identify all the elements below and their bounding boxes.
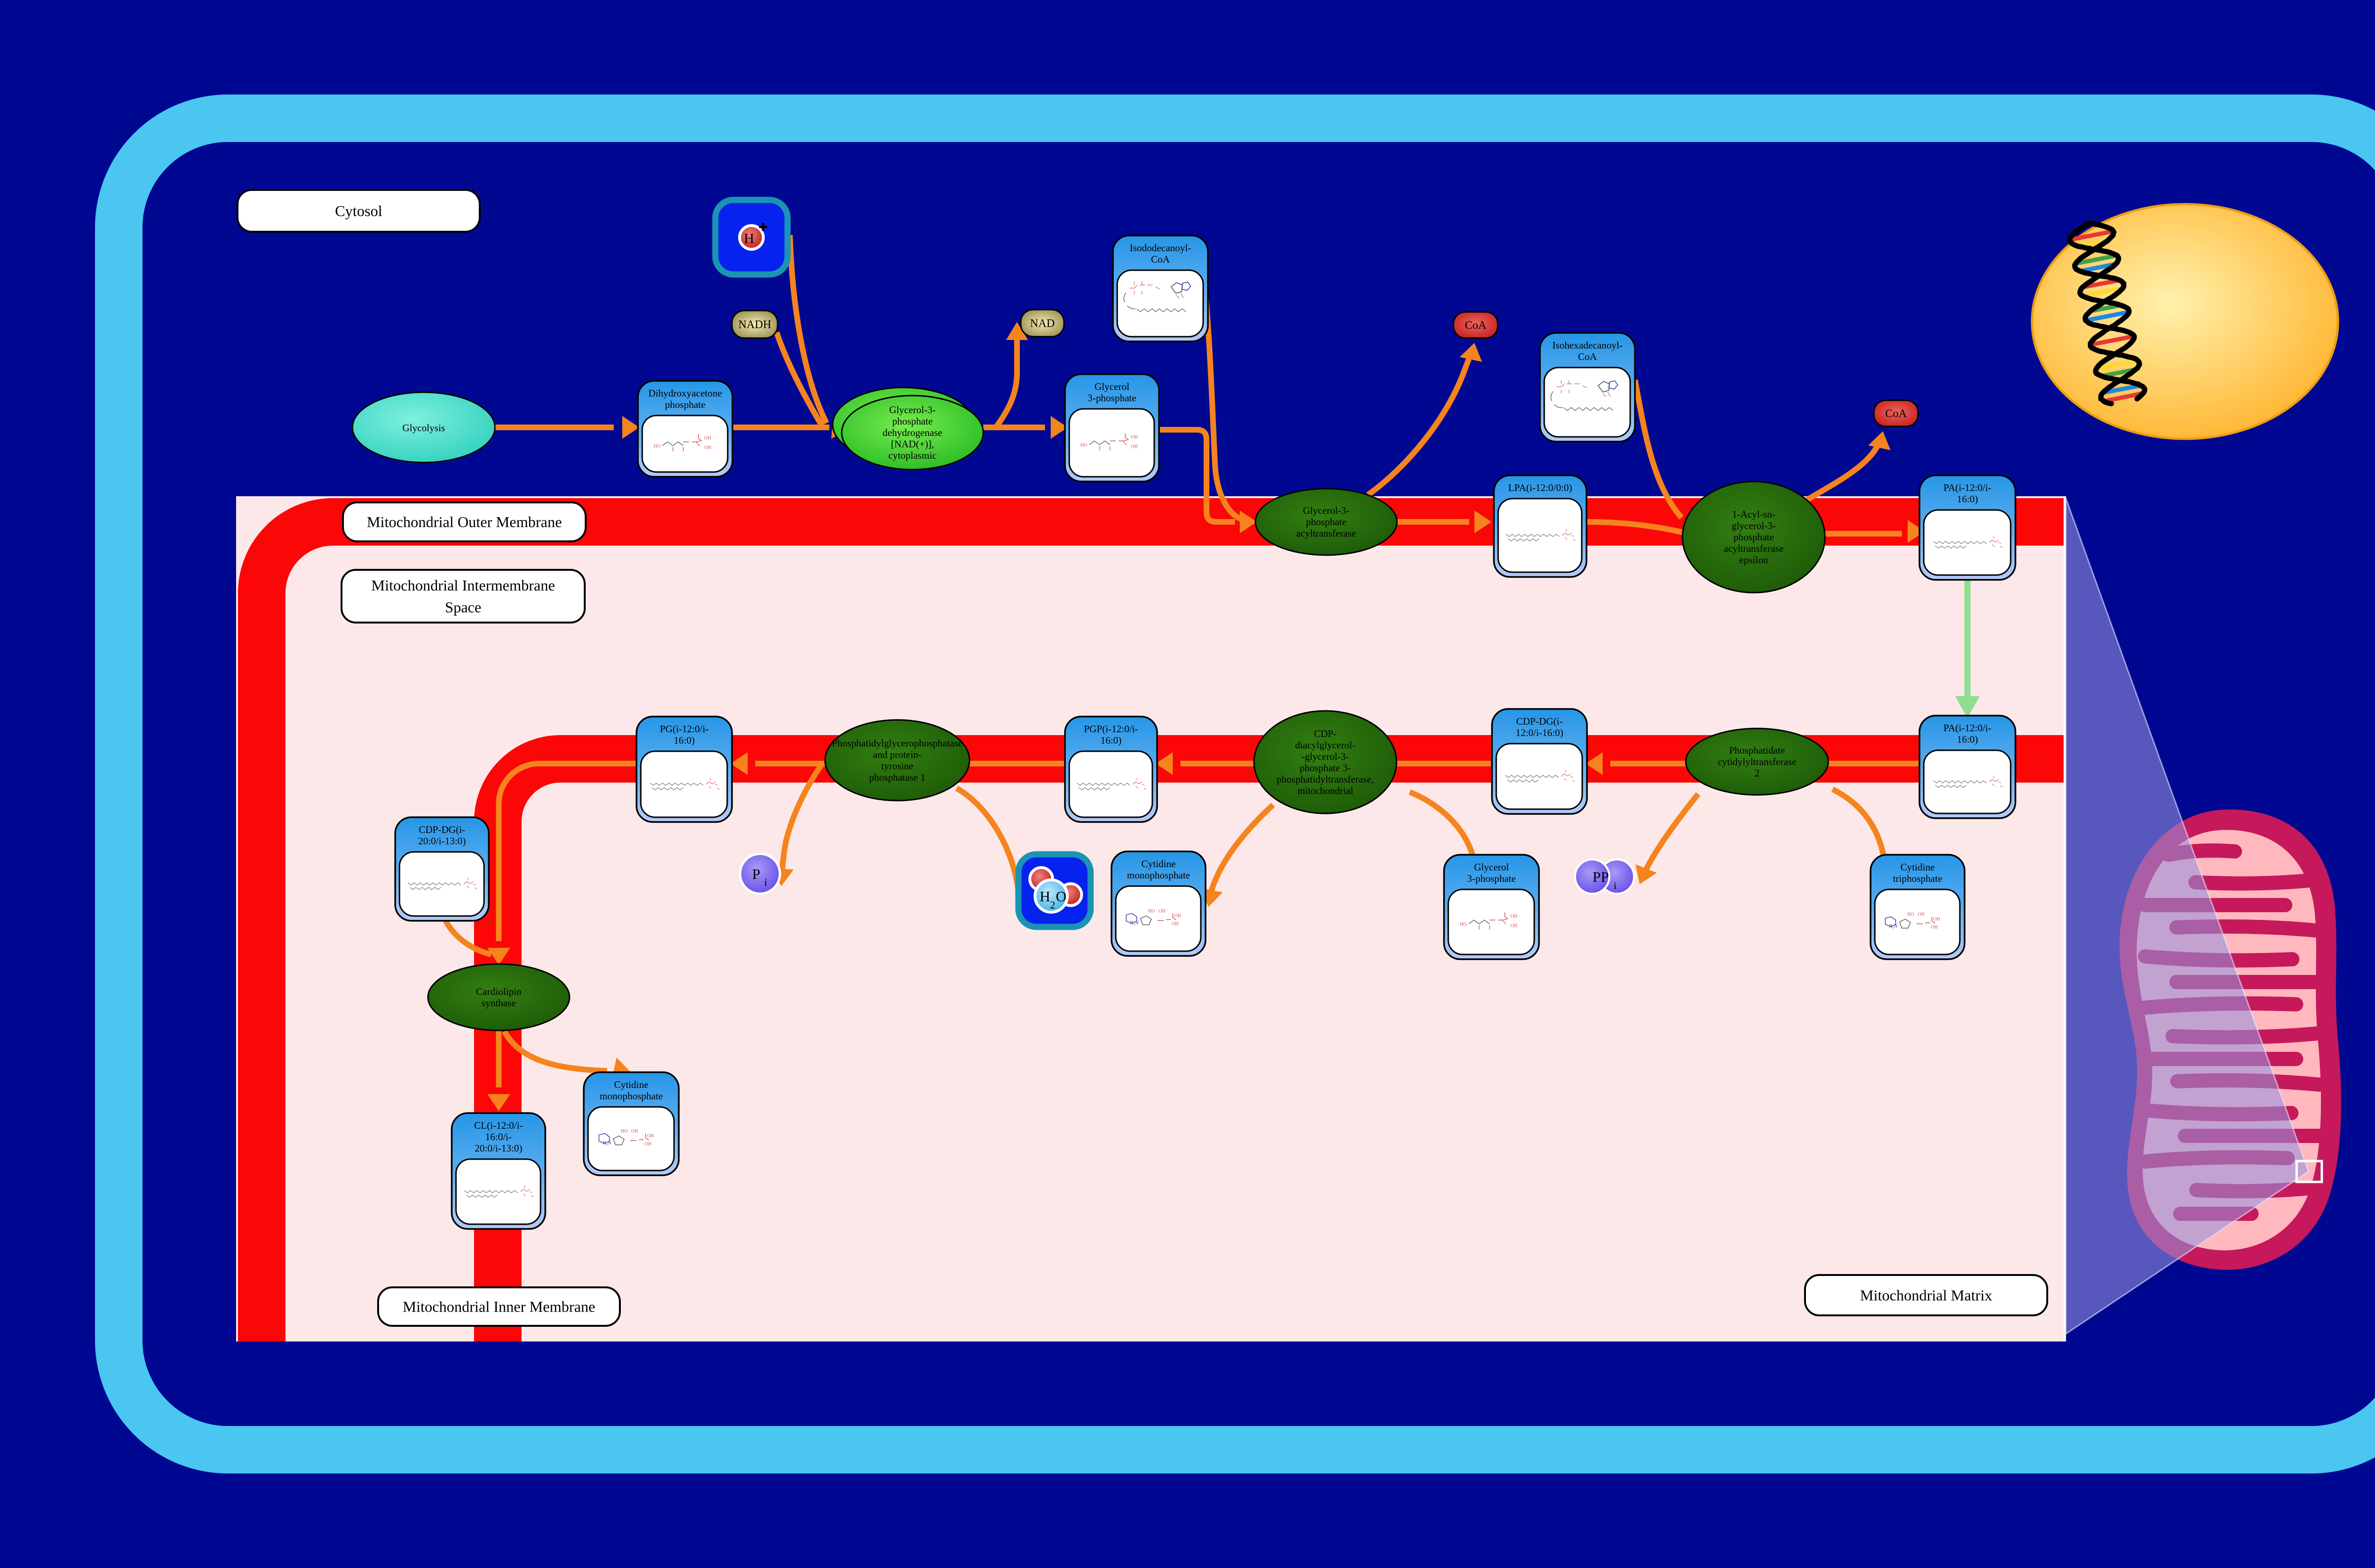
svg-text:Cardiolipin: Cardiolipin	[476, 986, 522, 997]
svg-text:acyltransferase: acyltransferase	[1296, 528, 1356, 539]
svg-text:OH: OH	[1131, 435, 1138, 440]
svg-text:Glycolysis: Glycolysis	[402, 422, 445, 434]
svg-text:OH: OH	[1918, 912, 1924, 917]
svg-text:HO: HO	[1148, 909, 1155, 914]
svg-text:OH: OH	[631, 1129, 638, 1134]
svg-text:Mitochondrial Intermembrane: Mitochondrial Intermembrane	[371, 577, 555, 594]
svg-text:CL(i-12:0/i-: CL(i-12:0/i-	[474, 1120, 523, 1131]
svg-text:2: 2	[1755, 767, 1760, 779]
svg-text:PA(i-12:0/i-: PA(i-12:0/i-	[1944, 722, 1992, 734]
svg-text:OH: OH	[1933, 917, 1940, 922]
svg-text:HO: HO	[1907, 912, 1914, 917]
svg-text:Cytidine: Cytidine	[1141, 858, 1176, 869]
svg-text:P: P	[752, 866, 760, 882]
svg-text:-glycerol-3-: -glycerol-3-	[1301, 751, 1349, 762]
svg-text:acyltransferase: acyltransferase	[1724, 543, 1784, 554]
svg-text:HO: HO	[654, 444, 660, 449]
svg-text:phosphatase 1: phosphatase 1	[869, 772, 925, 783]
svg-text:Isohexadecanoyl-: Isohexadecanoyl-	[1552, 340, 1623, 351]
svg-text:and protein-: and protein-	[873, 749, 921, 760]
svg-text:epsilon: epsilon	[1739, 554, 1768, 566]
svg-text:[NAD(+)],: [NAD(+)],	[891, 438, 934, 450]
svg-text:CoA: CoA	[1885, 408, 1907, 420]
svg-text:OH: OH	[647, 1133, 654, 1139]
svg-text:OH: OH	[645, 1142, 651, 1147]
svg-text:glycerol-3-: glycerol-3-	[1731, 520, 1776, 531]
svg-text:2: 2	[1050, 899, 1055, 911]
svg-text:Glycerol-3-: Glycerol-3-	[889, 404, 936, 416]
svg-text:OH: OH	[1174, 914, 1181, 919]
svg-text:i: i	[764, 876, 767, 888]
svg-text:Dihydroxyacetone: Dihydroxyacetone	[648, 387, 722, 399]
svg-text:Cytosol: Cytosol	[335, 202, 382, 219]
svg-text:CoA: CoA	[1465, 320, 1487, 332]
svg-text:phosphate: phosphate	[1306, 516, 1346, 528]
svg-text:i: i	[1614, 879, 1616, 891]
svg-text:phosphate: phosphate	[1733, 531, 1774, 543]
svg-text:16:0): 16:0)	[674, 735, 694, 746]
svg-text:phosphate 3-: phosphate 3-	[1300, 762, 1351, 774]
svg-text:OH: OH	[704, 436, 711, 441]
svg-text:Phosphatidate: Phosphatidate	[1729, 745, 1785, 756]
svg-text:cytidylyltransferase: cytidylyltransferase	[1718, 756, 1796, 767]
svg-text:diacylglycerol-: diacylglycerol-	[1295, 739, 1355, 751]
svg-text:Isododecanoyl-: Isododecanoyl-	[1130, 242, 1191, 254]
svg-text:monophosphate: monophosphate	[600, 1090, 663, 1102]
svg-text:OH: OH	[1931, 925, 1938, 930]
svg-text:20:0/i-13:0): 20:0/i-13:0)	[475, 1143, 522, 1154]
svg-text:H₂N: H₂N	[603, 1141, 611, 1146]
svg-text:16:0): 16:0)	[1957, 734, 1978, 745]
svg-text:NADH: NADH	[738, 319, 771, 331]
svg-text:OH: OH	[1510, 914, 1517, 919]
svg-text:CoA: CoA	[1578, 351, 1597, 362]
svg-text:Phosphatidylglycerophosphatase: Phosphatidylglycerophosphatase	[832, 737, 962, 749]
svg-text:OH: OH	[1159, 909, 1165, 914]
svg-text:20:0/i-13:0): 20:0/i-13:0)	[418, 835, 465, 847]
svg-text:16:0): 16:0)	[1957, 493, 1978, 505]
svg-text:Cytidine: Cytidine	[614, 1079, 648, 1090]
svg-text:tyrosine: tyrosine	[881, 760, 913, 772]
svg-text:Mitochondrial Outer Membrane: Mitochondrial Outer Membrane	[367, 513, 562, 530]
svg-text:OH: OH	[1172, 922, 1178, 927]
svg-text:HO: HO	[1081, 443, 1087, 448]
svg-text:Cytidine: Cytidine	[1900, 861, 1935, 873]
svg-text:NAD: NAD	[1030, 318, 1055, 330]
svg-text:PG(i-12:0/i-: PG(i-12:0/i-	[660, 723, 709, 735]
svg-text:mitochondrial: mitochondrial	[1297, 785, 1353, 796]
svg-text:O: O	[1056, 888, 1066, 905]
svg-text:LPA(i-12:0/0:0): LPA(i-12:0/0:0)	[1508, 482, 1572, 493]
svg-text:12:0/i-16:0): 12:0/i-16:0)	[1516, 727, 1563, 738]
svg-text:synthase: synthase	[482, 997, 516, 1009]
svg-text:Glycerol-3-: Glycerol-3-	[1303, 505, 1349, 516]
svg-text:3-phosphate: 3-phosphate	[1467, 873, 1516, 884]
svg-text:CDP-DG(i-: CDP-DG(i-	[1516, 716, 1563, 727]
svg-text:PGP(i-12:0/i-: PGP(i-12:0/i-	[1084, 723, 1138, 735]
svg-text:OH: OH	[1131, 444, 1138, 450]
svg-text:cytoplasmic: cytoplasmic	[888, 450, 936, 461]
svg-text:1-Acyl-sn-: 1-Acyl-sn-	[1732, 509, 1776, 520]
svg-text:HO: HO	[1460, 922, 1467, 927]
svg-text:Glycerol: Glycerol	[1094, 381, 1130, 392]
svg-text:phosphate: phosphate	[665, 399, 705, 410]
svg-text:16:0): 16:0)	[1101, 735, 1121, 746]
svg-text:PP: PP	[1593, 869, 1609, 885]
svg-text:triphosphate: triphosphate	[1893, 873, 1942, 884]
svg-text:Mitochondrial Matrix: Mitochondrial Matrix	[1860, 1287, 1992, 1304]
svg-text:3-phosphate: 3-phosphate	[1088, 392, 1137, 404]
svg-text:CDP-: CDP-	[1314, 728, 1337, 739]
svg-text:dehydrogenase: dehydrogenase	[883, 427, 942, 438]
svg-text:H₂N: H₂N	[1130, 921, 1139, 926]
svg-text:monophosphate: monophosphate	[1127, 869, 1190, 881]
svg-text:H₂N: H₂N	[1889, 924, 1898, 929]
svg-text:HO: HO	[621, 1129, 627, 1134]
svg-text:phosphate: phosphate	[892, 416, 932, 427]
svg-text:CDP-DG(i-: CDP-DG(i-	[419, 824, 465, 835]
svg-text:Space: Space	[445, 599, 481, 616]
svg-text:PA(i-12:0/i-: PA(i-12:0/i-	[1944, 482, 1992, 493]
svg-text:16:0/i-: 16:0/i-	[485, 1131, 512, 1143]
svg-text:phosphatidyltransferase,: phosphatidyltransferase,	[1277, 774, 1374, 785]
svg-text:Mitochondrial Inner Membrane: Mitochondrial Inner Membrane	[403, 1298, 595, 1315]
svg-text:CoA: CoA	[1151, 254, 1170, 265]
svg-text:H: H	[744, 231, 754, 246]
svg-text:OH: OH	[1510, 924, 1517, 929]
svg-text:OH: OH	[704, 445, 711, 451]
svg-text:H: H	[1040, 888, 1050, 905]
svg-text:Glycerol: Glycerol	[1474, 861, 1509, 873]
